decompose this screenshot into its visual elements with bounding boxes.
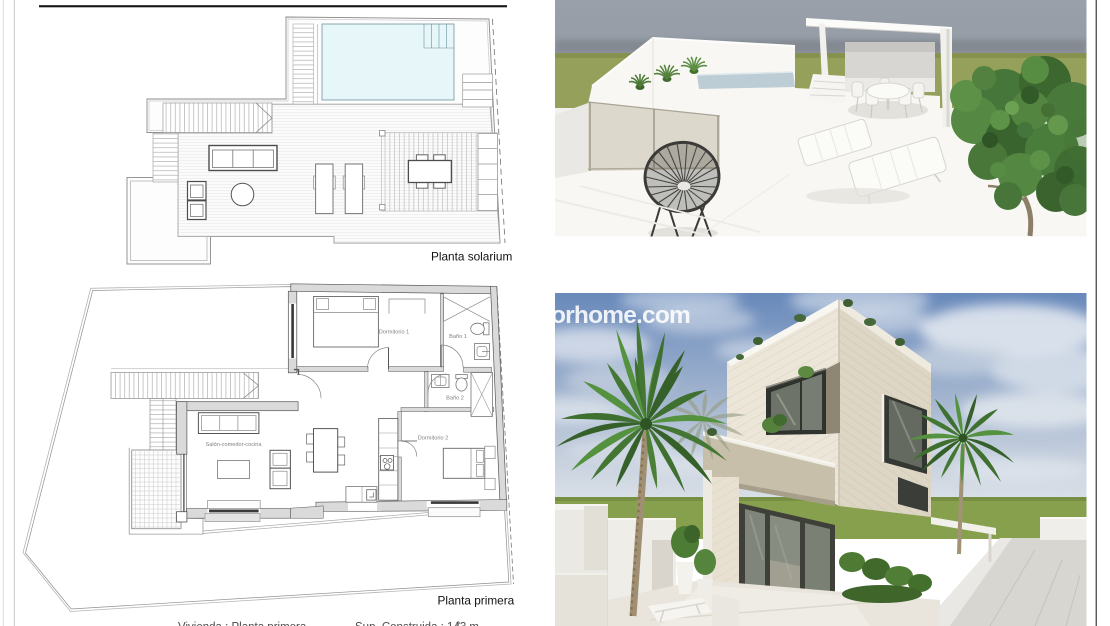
svg-text:Planta primera: Planta primera: [438, 594, 515, 608]
svg-text:2: 2: [456, 620, 460, 626]
svg-text:Vivienda : Planta primera: Vivienda : Planta primera: [178, 622, 307, 626]
svg-text:Dormitorio 2: Dormitorio 2: [418, 436, 448, 442]
svg-text:Planta solarium: Planta solarium: [431, 250, 512, 264]
svg-text:Salón-comedor-cocina: Salón-comedor-cocina: [206, 442, 263, 448]
svg-text:Baño 2: Baño 2: [446, 396, 464, 402]
svg-text:Baño 1: Baño 1: [449, 334, 467, 340]
svg-text:orhome.com: orhome.com: [551, 302, 690, 329]
svg-text:Sup. Construida : 143 m: Sup. Construida : 143 m: [355, 622, 479, 626]
svg-text:Dormitorio 1: Dormitorio 1: [379, 330, 409, 336]
